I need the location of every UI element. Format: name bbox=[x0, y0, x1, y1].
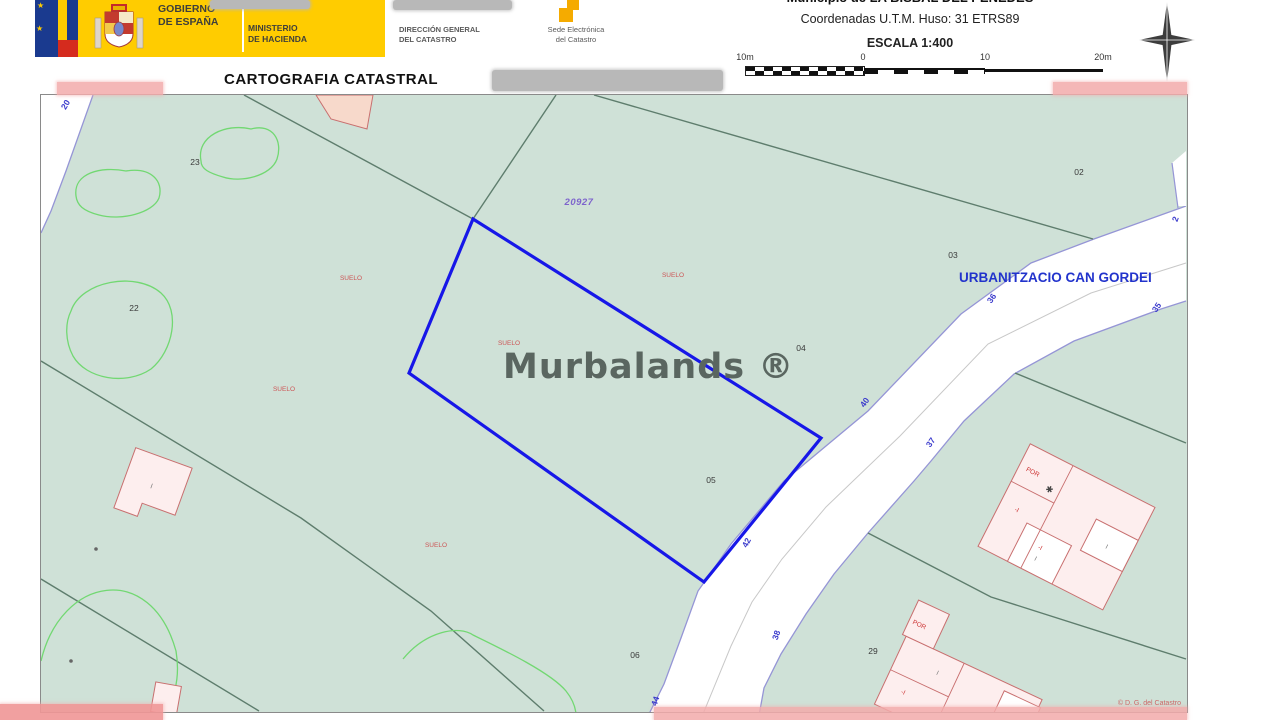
sede-label-line1: Sede Electrónica bbox=[538, 25, 614, 34]
redacted-pink-bar bbox=[1053, 82, 1187, 95]
compass-rose-icon bbox=[1136, 0, 1198, 84]
direccion-general-label-line2: DEL CATASTRO bbox=[399, 35, 457, 44]
scale-bar-checkered bbox=[745, 66, 865, 76]
cadastral-ref-label: 20927 bbox=[564, 197, 594, 208]
scale-tick-label: 10m bbox=[730, 52, 760, 62]
eu-star-icon: ★ bbox=[37, 1, 44, 10]
scale-tick-label: 10 bbox=[970, 52, 1000, 62]
flag-red-square bbox=[58, 40, 78, 57]
parcel-label: 02 bbox=[1074, 167, 1084, 177]
scale-bar-middle bbox=[864, 68, 985, 74]
copyright-label: © D. G. del Catastro bbox=[1118, 699, 1181, 707]
eu-star-icon: ★ bbox=[36, 24, 43, 33]
suelo-label: SUELO bbox=[498, 340, 520, 347]
parcel-label: 23 bbox=[190, 157, 200, 167]
point-marker bbox=[69, 659, 73, 663]
parcel-label: 04 bbox=[796, 343, 806, 353]
sede-label-line2: del Catastro bbox=[538, 35, 614, 44]
page-title: CARTOGRAFIA CATASTRAL bbox=[224, 71, 438, 88]
escala-label: ESCALA 1:400 bbox=[750, 36, 1070, 50]
parcel-label: 05 bbox=[706, 475, 716, 485]
point-marker bbox=[94, 547, 98, 551]
scale-tick-label: 20m bbox=[1088, 52, 1118, 62]
road-name-label: URBANITZACIO CAN GORDEI bbox=[959, 270, 1152, 285]
redacted-pink-bar bbox=[57, 82, 163, 95]
suelo-label: SUELO bbox=[425, 542, 447, 549]
gobierno-label-line2: DE ESPAÑA bbox=[158, 16, 218, 28]
municipio-label: Municipio de LA BISBAL DEL PENEDES bbox=[750, 0, 1070, 5]
sede-electronica-icon bbox=[552, 0, 582, 22]
parcel-label: 29 bbox=[868, 646, 878, 656]
cadastral-map: I POR ✱ -I -I I I POR I -I I bbox=[40, 94, 1188, 713]
parcel-label: 03 bbox=[948, 250, 958, 260]
scale-tick-label: 0 bbox=[848, 52, 878, 62]
redacted-text-bar bbox=[393, 0, 512, 10]
parcel-label: 06 bbox=[630, 650, 640, 660]
redacted-text-bar bbox=[210, 0, 310, 9]
redacted-pink-bar bbox=[0, 704, 163, 720]
parcel-label: 22 bbox=[129, 303, 139, 313]
suelo-label: SUELO bbox=[340, 275, 362, 282]
gobierno-label-line1: GOBIERNO bbox=[158, 3, 215, 15]
map-background bbox=[41, 95, 1187, 712]
logo-divider bbox=[242, 4, 244, 52]
cadastral-map-page: ★ ★ GOBIERNO DE ESPAÑA MINISTERIO DE HAC… bbox=[0, 0, 1280, 720]
redacted-pink-bar bbox=[654, 707, 1187, 720]
ministerio-label-line1: MINISTERIO bbox=[248, 24, 298, 34]
direccion-general-label-line1: DIRECCIÓN GENERAL bbox=[399, 25, 480, 34]
scale-bar-solid bbox=[985, 69, 1103, 72]
watermark: Murbalands ® bbox=[503, 347, 794, 387]
eu-flag-block: ★ ★ bbox=[35, 0, 78, 57]
spain-coat-of-arms bbox=[92, 2, 146, 56]
redacted-reference-bar bbox=[492, 70, 723, 91]
suelo-label: SUELO bbox=[662, 272, 684, 279]
ministerio-label-line2: DE HACIENDA bbox=[248, 35, 307, 45]
coordenadas-label: Coordenadas U.T.M. Huso: 31 ETRS89 bbox=[750, 12, 1070, 26]
suelo-label: SUELO bbox=[273, 386, 295, 393]
flag-yellow-stripe bbox=[58, 0, 67, 40]
